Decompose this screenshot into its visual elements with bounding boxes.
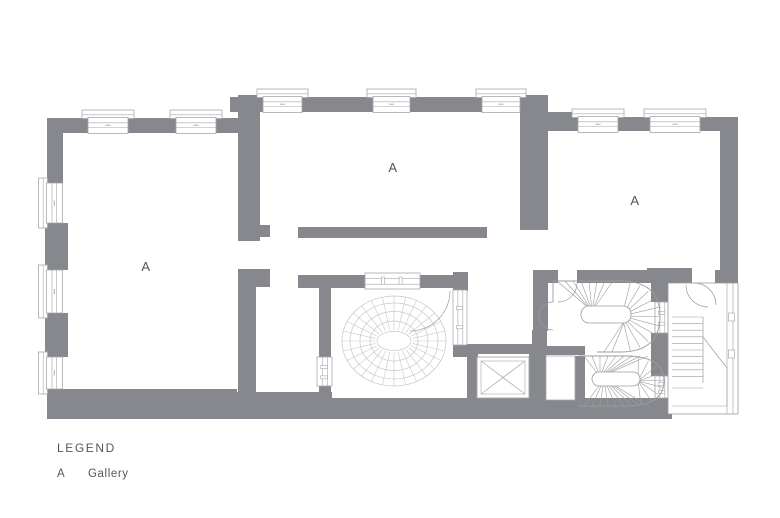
floor-plan-page: A A A LEGEND A Gallery	[0, 0, 780, 518]
legend: LEGEND A Gallery	[57, 441, 129, 480]
room-label-gallery-central: A	[388, 160, 397, 175]
room-label-gallery-east: A	[630, 193, 639, 208]
legend-key: A	[57, 468, 88, 480]
room-labels: A A A	[141, 160, 639, 274]
legend-row: A Gallery	[57, 468, 129, 480]
legend-title: LEGEND	[57, 441, 129, 455]
room-label-gallery-west: A	[141, 259, 150, 274]
fire-stair	[668, 283, 738, 414]
oval-dome-skylight	[342, 296, 446, 386]
legend-label: Gallery	[88, 468, 129, 480]
elevator	[477, 356, 575, 400]
